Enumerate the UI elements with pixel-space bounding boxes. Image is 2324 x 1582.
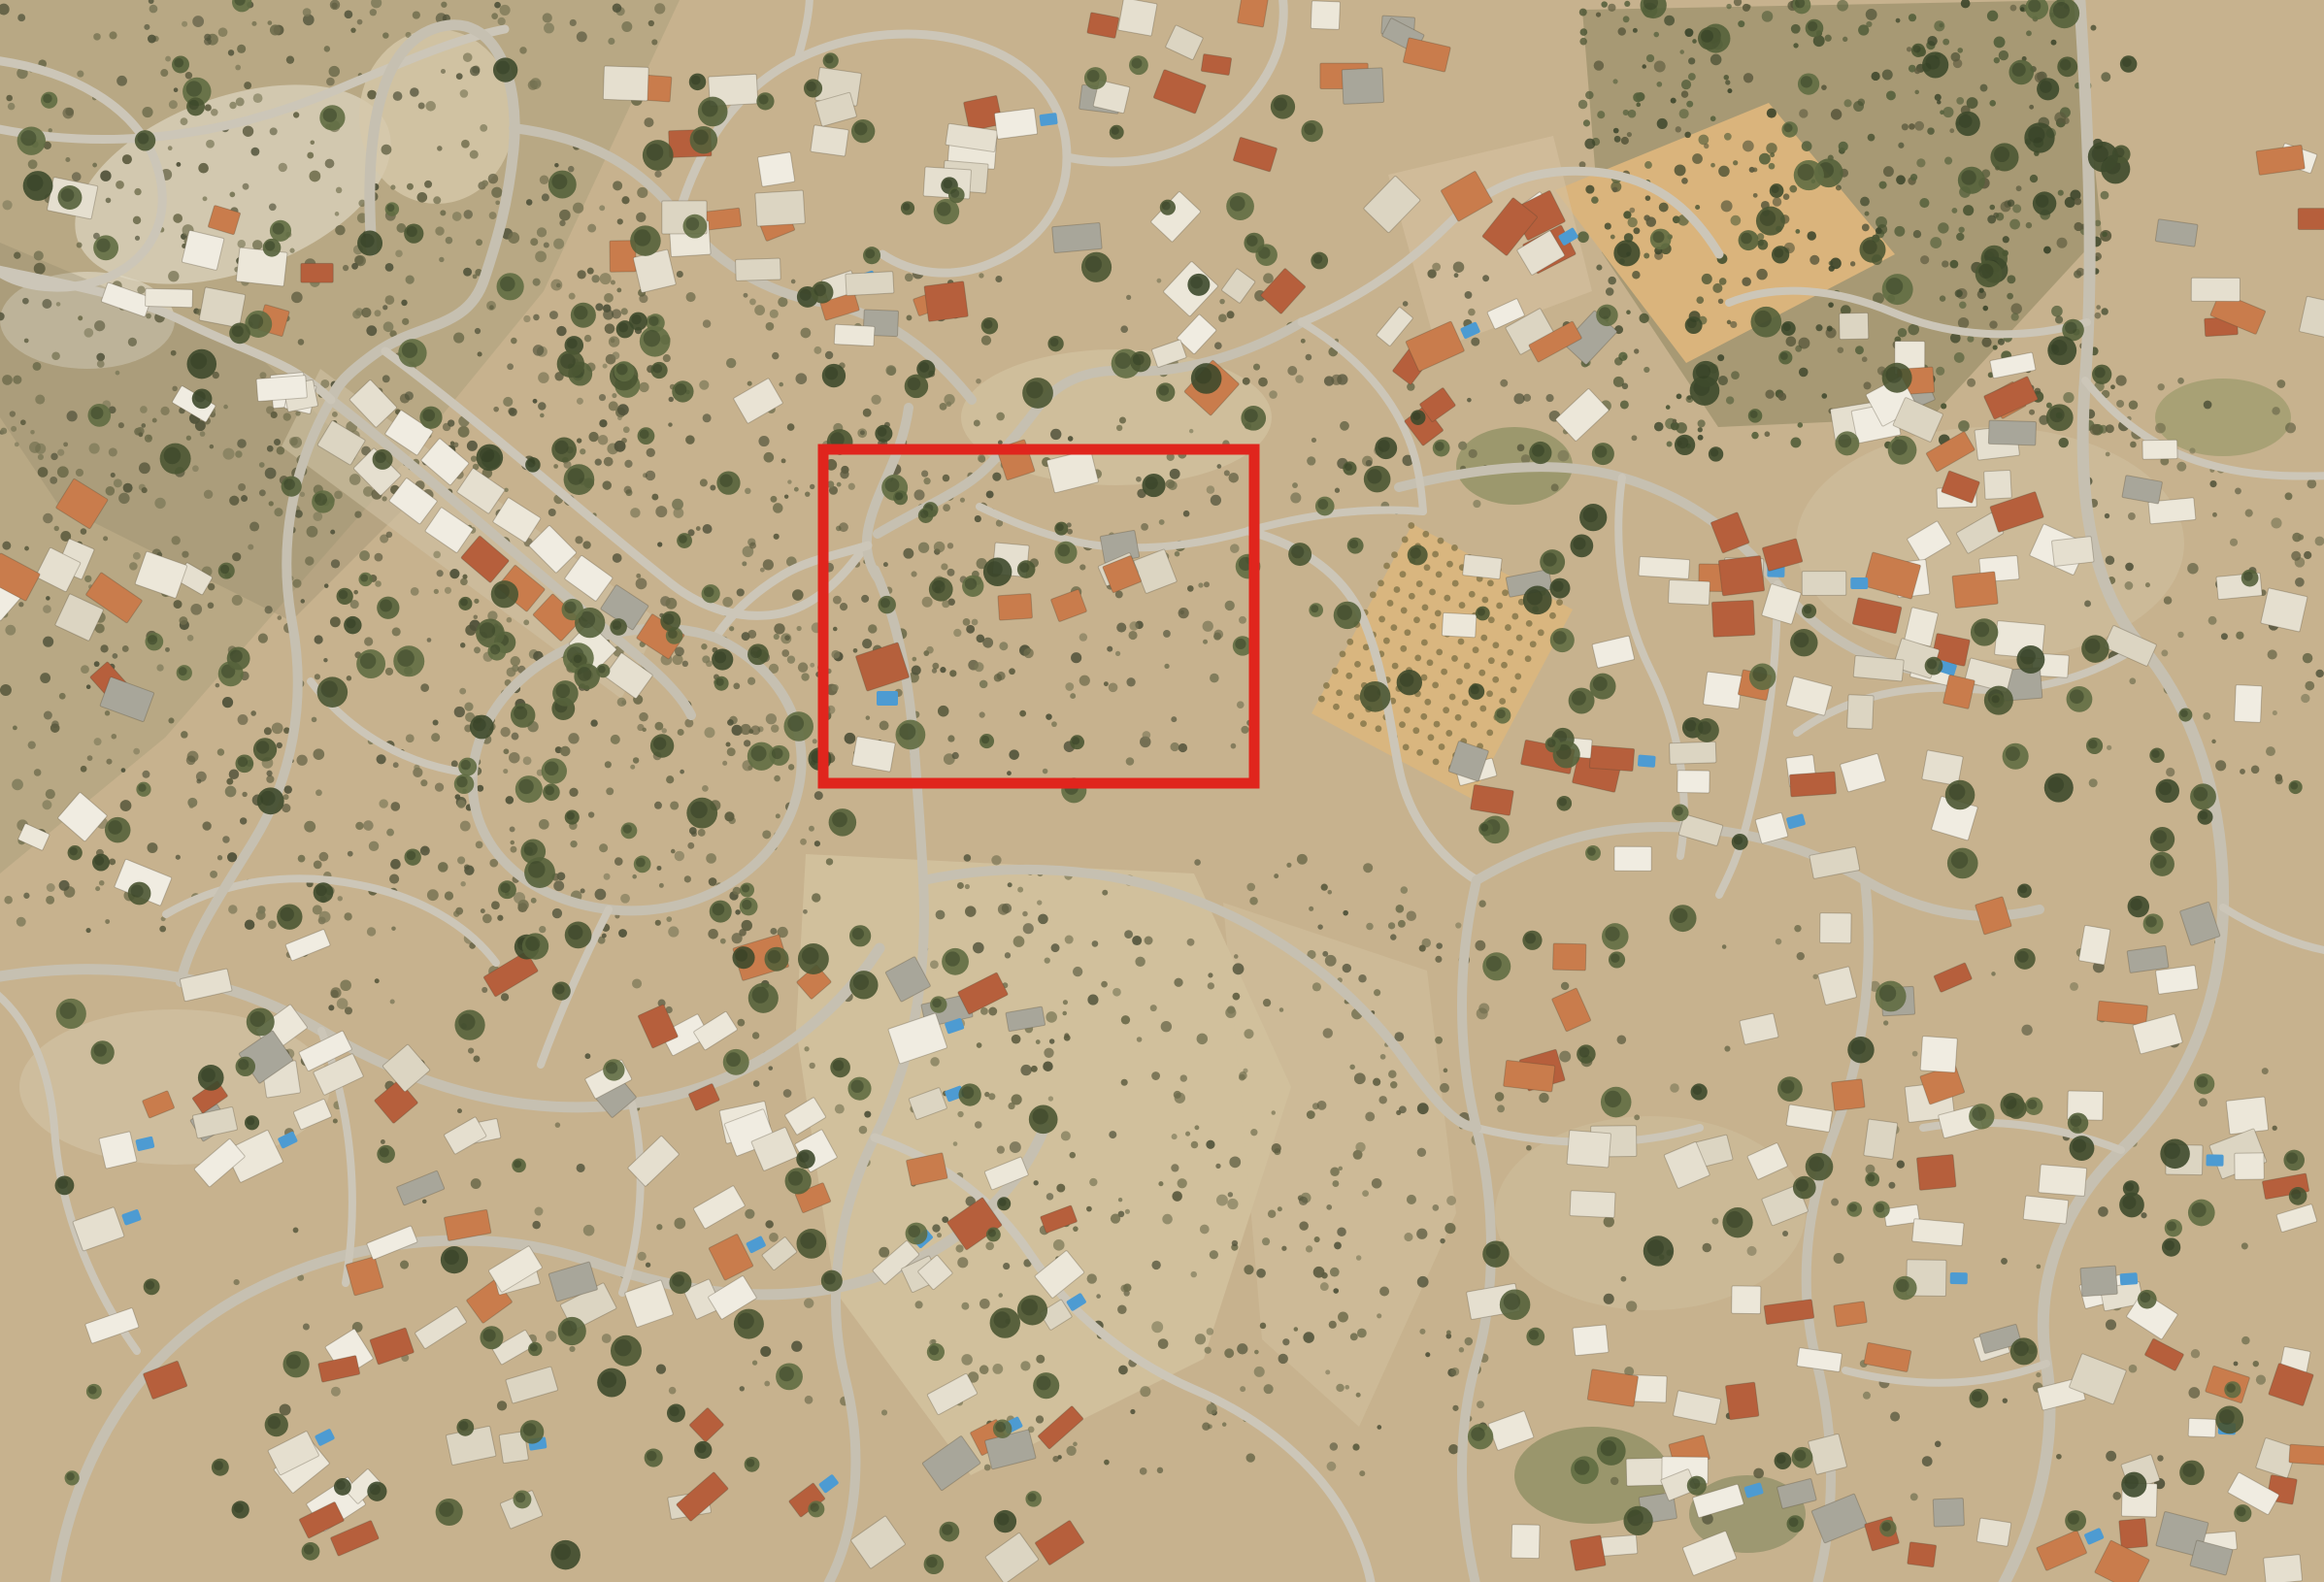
satellite-map: [0, 0, 2324, 1582]
satellite-map-view: [0, 0, 2324, 1582]
